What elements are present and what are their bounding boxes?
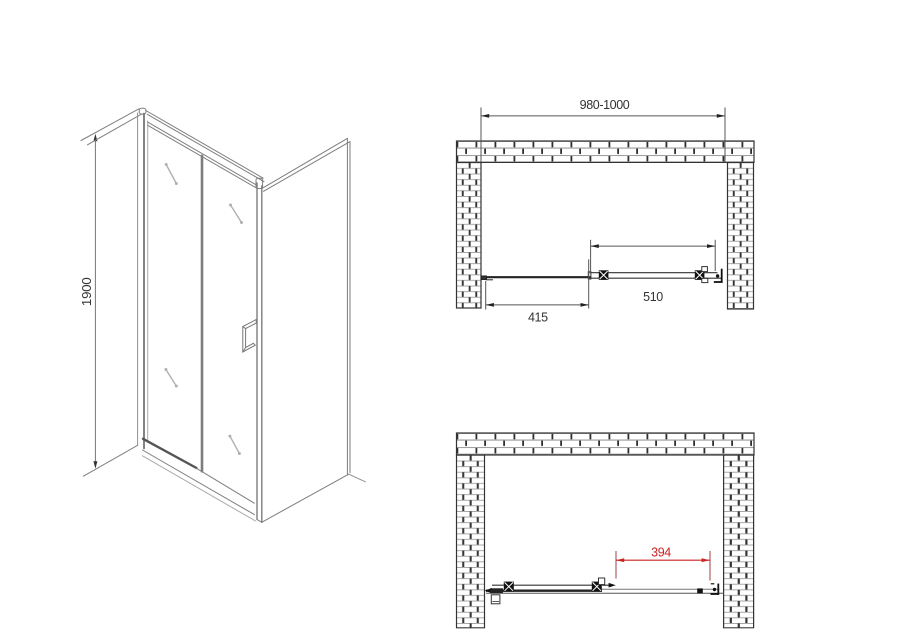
svg-text:1900: 1900 [79,278,94,307]
svg-text:510: 510 [643,290,663,304]
svg-text:394: 394 [651,546,671,560]
svg-text:415: 415 [528,311,548,325]
svg-text:980-1000: 980-1000 [580,98,630,112]
